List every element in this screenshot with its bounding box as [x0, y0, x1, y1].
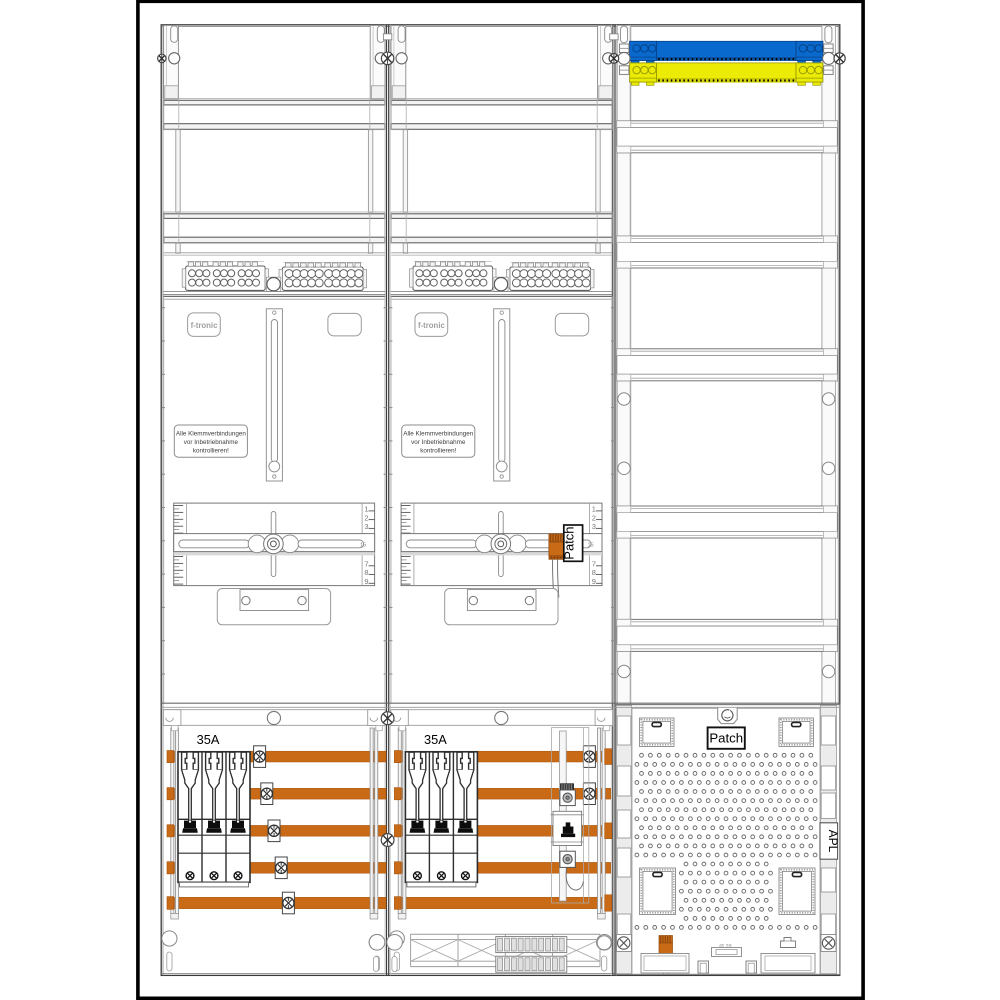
svg-text:APL: APL — [826, 830, 840, 853]
svg-text:2: 2 — [592, 513, 596, 522]
svg-text:15: 15 — [588, 542, 594, 548]
svg-text:35A: 35A — [197, 732, 220, 747]
svg-text:7: 7 — [364, 560, 368, 569]
svg-text:8: 8 — [364, 568, 368, 577]
svg-text:35A: 35A — [424, 732, 447, 747]
svg-text:f-tronic: f-tronic — [191, 321, 219, 330]
svg-text:f-tronic: f-tronic — [418, 321, 446, 330]
svg-text:2: 2 — [364, 513, 368, 522]
svg-text:3: 3 — [592, 522, 596, 531]
svg-text:9: 9 — [592, 577, 596, 586]
svg-text:9: 9 — [364, 577, 368, 586]
svg-text:1: 1 — [364, 505, 368, 514]
svg-text:kontrollieren!: kontrollieren! — [420, 448, 456, 455]
svg-text:15: 15 — [360, 542, 366, 548]
svg-text:vor Inbetriebnahme: vor Inbetriebnahme — [411, 439, 466, 446]
svg-text:7: 7 — [592, 560, 596, 569]
svg-text:Patch: Patch — [562, 526, 577, 559]
svg-text:kontrollieren!: kontrollieren! — [193, 448, 229, 455]
svg-text:Patch: Patch — [709, 731, 743, 746]
svg-text:1: 1 — [592, 505, 596, 514]
svg-text:Alle Klemmverbindungen: Alle Klemmverbindungen — [176, 431, 247, 438]
svg-text:Alle Klemmverbindungen: Alle Klemmverbindungen — [403, 431, 474, 438]
svg-text:8: 8 — [592, 568, 596, 577]
svg-text:3: 3 — [364, 522, 368, 531]
svg-text:vor Inbetriebnahme: vor Inbetriebnahme — [184, 439, 239, 446]
